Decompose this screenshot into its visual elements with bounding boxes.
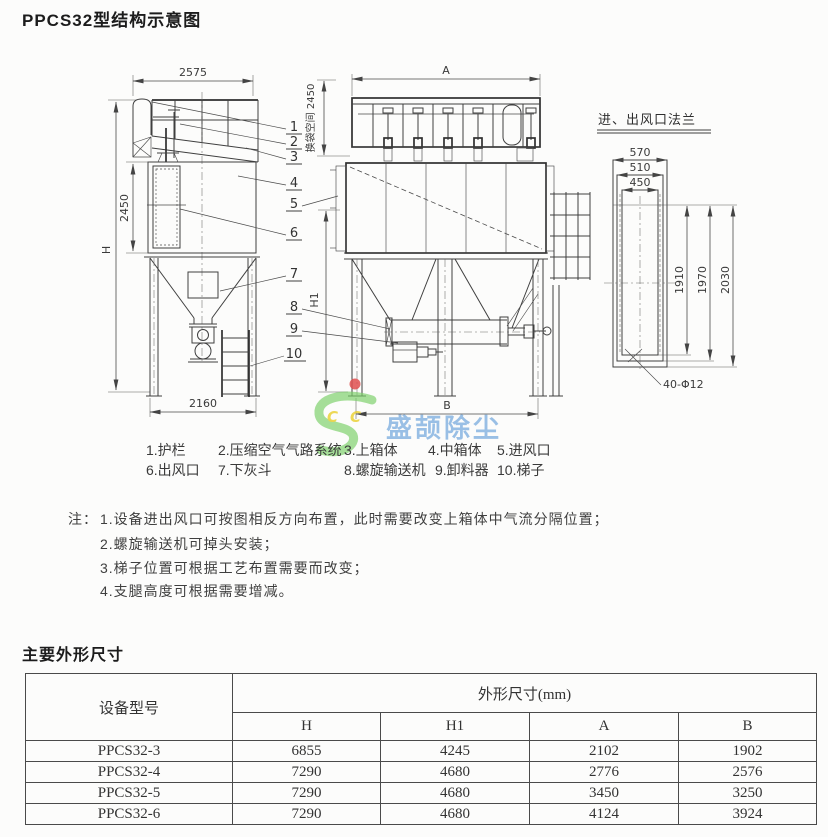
legend-item-10: 10.梯子 bbox=[497, 460, 544, 480]
table-row: PPCS32-6 7290 4680 4124 3924 bbox=[26, 804, 817, 825]
logo-letter-c1: C bbox=[327, 408, 338, 426]
dim-h1: H1 bbox=[308, 292, 321, 307]
col-header-b: B bbox=[679, 713, 817, 741]
value-cell: 3450 bbox=[530, 783, 679, 804]
note-line-4: 4.支腿高度可根据需要增减。 bbox=[100, 581, 294, 601]
legend-item-8: 8.螺旋输送机 bbox=[344, 460, 426, 480]
value-cell: 7290 bbox=[233, 783, 381, 804]
callout-6: 6 bbox=[290, 226, 298, 241]
watermark-brand-text: 盛颉除尘 bbox=[386, 408, 502, 445]
value-cell: 4680 bbox=[381, 762, 530, 783]
col-header-model: 设备型号 bbox=[26, 674, 233, 741]
value-cell: 2776 bbox=[530, 762, 679, 783]
callout-9: 9 bbox=[290, 322, 298, 337]
callout-1: 1 bbox=[290, 120, 298, 135]
value-cell: 4245 bbox=[381, 741, 530, 762]
model-cell: PPCS32-5 bbox=[26, 783, 233, 804]
callout-2: 2 bbox=[290, 135, 298, 150]
table-row: PPCS32-3 6855 4245 2102 1902 bbox=[26, 741, 817, 762]
dim-1970: 1970 bbox=[696, 266, 709, 294]
legend-item-6: 6.出风口 bbox=[146, 460, 200, 480]
legend-item-1: 1.护栏 bbox=[146, 440, 186, 460]
dim-h: H bbox=[100, 246, 113, 254]
value-cell: 6855 bbox=[233, 741, 381, 762]
bolt-note: 40-Φ12 bbox=[663, 378, 704, 391]
catalog-page: PPCS32型结构示意图 2575 H bbox=[0, 0, 828, 837]
dim-2030: 2030 bbox=[719, 266, 732, 294]
table-row: PPCS32-5 7290 4680 3450 3250 bbox=[26, 783, 817, 804]
model-cell: PPCS32-6 bbox=[26, 804, 233, 825]
value-cell: 7290 bbox=[233, 804, 381, 825]
col-header-h: H bbox=[233, 713, 381, 741]
callouts: 1 2 3 4 5 6 7 8 9 10 bbox=[152, 102, 398, 366]
pulse-valves bbox=[383, 105, 536, 148]
dim-2450: 2450 bbox=[118, 194, 131, 222]
callout-8: 8 bbox=[290, 300, 298, 315]
dim-2160: 2160 bbox=[189, 397, 217, 410]
callout-10: 10 bbox=[286, 347, 303, 362]
note-line-2: 2.螺旋输送机可掉头安装； bbox=[100, 534, 279, 554]
col-header-h1: H1 bbox=[381, 713, 530, 741]
dimensions-table: 设备型号 外形尺寸(mm) H H1 A B PPCS32-3 6855 424… bbox=[25, 673, 817, 825]
dim-a: A bbox=[442, 64, 450, 77]
callout-7: 7 bbox=[290, 267, 298, 282]
table-row: PPCS32-4 7290 4680 2776 2576 bbox=[26, 762, 817, 783]
legend-item-9: 9.卸料器 bbox=[435, 460, 489, 480]
notes-label: 注： bbox=[68, 509, 98, 529]
flange-title: 进、出风口法兰 bbox=[598, 113, 696, 128]
dim-510: 510 bbox=[630, 161, 651, 174]
value-cell: 2102 bbox=[530, 741, 679, 762]
value-cell: 3924 bbox=[679, 804, 817, 825]
value-cell: 1902 bbox=[679, 741, 817, 762]
legend-item-2: 2.压缩空气气路系统 bbox=[218, 440, 342, 460]
legend-item-5: 5.进风口 bbox=[497, 440, 551, 460]
dim-450: 450 bbox=[630, 176, 651, 189]
note-line-1: 1.设备进出风口可按图相反方向布置，此时需要改变上箱体中气流分隔位置； bbox=[100, 509, 609, 529]
value-cell: 7290 bbox=[233, 762, 381, 783]
callout-4: 4 bbox=[290, 176, 298, 191]
legend-item-7: 7.下灰斗 bbox=[218, 460, 272, 480]
col-header-group: 外形尺寸(mm) bbox=[233, 674, 817, 713]
air-tank bbox=[503, 105, 521, 145]
dim-570: 570 bbox=[630, 146, 651, 159]
note-line-3: 3.梯子位置可根据工艺布置需要而改变； bbox=[100, 558, 369, 578]
model-cell: PPCS32-4 bbox=[26, 762, 233, 783]
callout-3: 3 bbox=[290, 150, 298, 165]
value-cell: 4680 bbox=[381, 804, 530, 825]
logo-letter-c2: C bbox=[350, 408, 361, 426]
dim-1910: 1910 bbox=[673, 266, 686, 294]
dim-bag-space: 换袋空间 2450 bbox=[304, 84, 317, 153]
value-cell: 3250 bbox=[679, 783, 817, 804]
callout-5: 5 bbox=[290, 197, 298, 212]
front-view: A bbox=[304, 64, 590, 419]
value-cell: 4124 bbox=[530, 804, 679, 825]
col-header-a: A bbox=[530, 713, 679, 741]
dim-2575: 2575 bbox=[179, 66, 207, 79]
rotary-valve bbox=[393, 342, 443, 362]
flange-detail-view: 进、出风口法兰 570 510 450 1910 1970 bbox=[597, 113, 737, 391]
value-cell: 2576 bbox=[679, 762, 817, 783]
value-cell: 4680 bbox=[381, 783, 530, 804]
logo-dot bbox=[350, 379, 361, 390]
table-heading: 主要外形尺寸 bbox=[22, 641, 124, 665]
model-cell: PPCS32-3 bbox=[26, 741, 233, 762]
